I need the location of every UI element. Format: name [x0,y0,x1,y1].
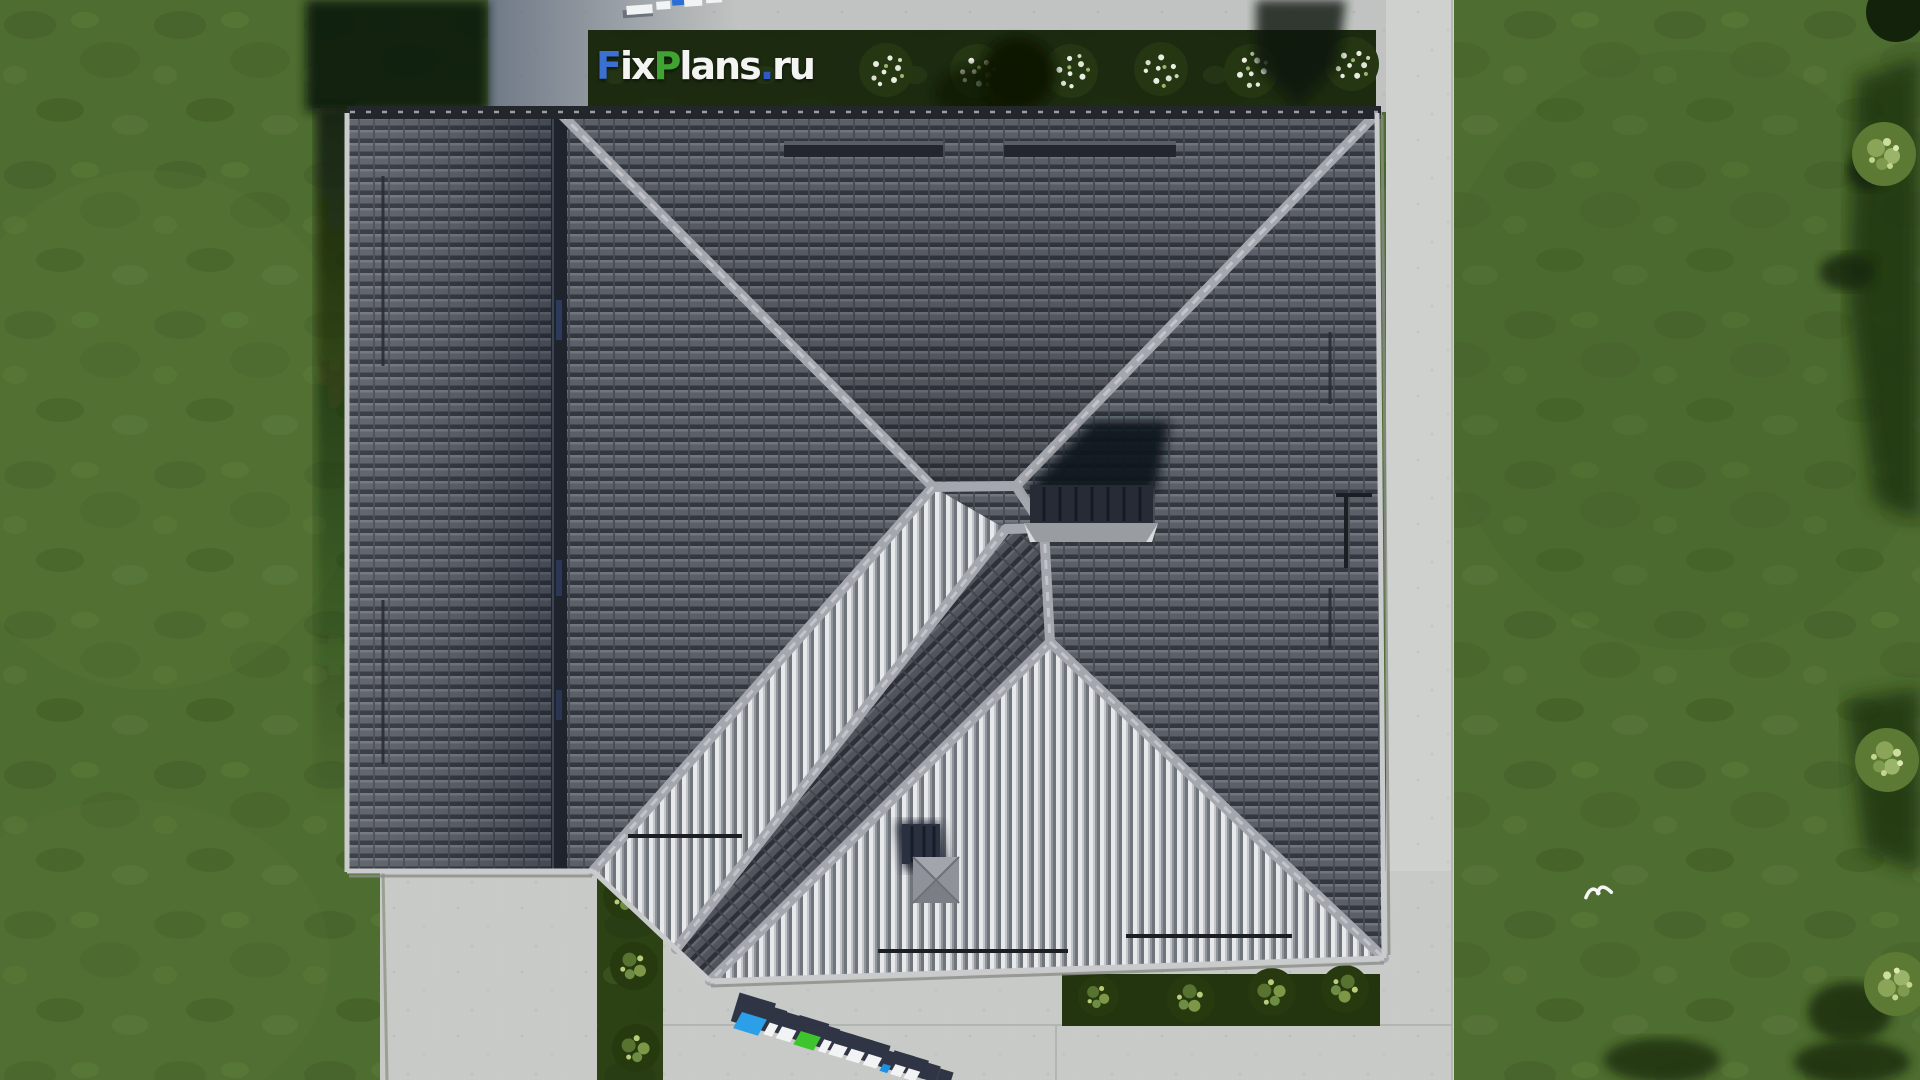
brand-watermark: FixPlans.ru [596,44,814,88]
tree [1852,122,1916,186]
junction-glint [556,300,562,340]
junction-glint [556,560,562,596]
flower-bush [859,43,913,97]
junction-glint [556,690,562,720]
roof-left-shading [347,113,560,872]
bed-bush [1078,976,1119,1017]
dark-tree [981,37,1055,111]
tree-shadow-topleft [306,0,488,112]
aerial-roof-render: FixPlans.ru [0,0,1920,1080]
scene-svg [0,0,1920,1080]
brand-seg-P: P [654,44,680,88]
brand-seg-dot: . [760,44,772,88]
vent-edge [784,141,943,145]
roof [347,106,1389,986]
brand-seg-lans: lans [679,44,759,88]
tree-shadow [1820,254,1876,290]
vent-edge [1004,141,1176,145]
brand-seg-ix: ix [620,44,654,88]
chimney-cap [1024,523,1158,542]
brand-seg-F: F [596,44,620,88]
brand-seg-ru: ru [772,44,814,88]
lawn-shadow-blob [1604,1038,1720,1080]
